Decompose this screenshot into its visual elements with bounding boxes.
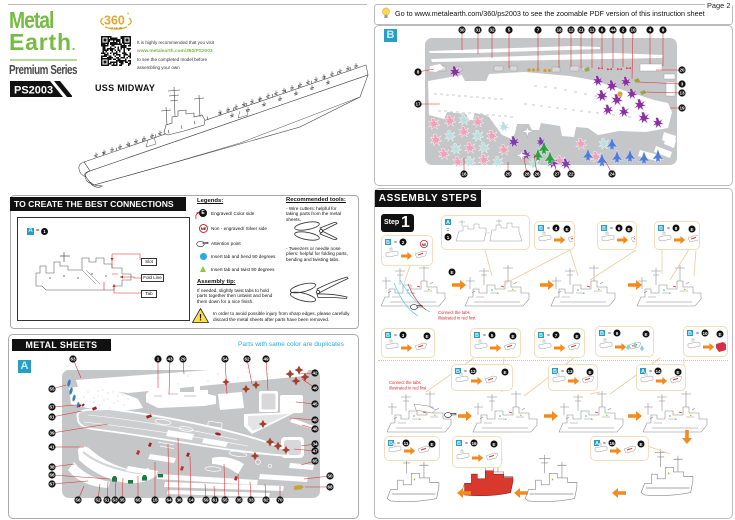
svg-text:61: 61 <box>49 415 55 420</box>
svg-text:=: = <box>547 333 550 339</box>
svg-text:B: B <box>539 226 543 232</box>
svg-text:45: 45 <box>312 402 318 407</box>
svg-text:29: 29 <box>180 357 186 362</box>
svg-text:E: E <box>718 332 721 337</box>
svg-text:7: 7 <box>555 333 558 338</box>
svg-text:18: 18 <box>556 28 562 33</box>
svg-text:62: 62 <box>244 357 250 362</box>
svg-text:=: = <box>696 331 699 337</box>
svg-text:3: 3 <box>402 333 405 338</box>
svg-text:=: = <box>610 226 613 232</box>
svg-text:E: E <box>690 227 693 232</box>
svg-text:54: 54 <box>222 357 228 362</box>
svg-text:E: E <box>565 227 568 232</box>
svg-text:17: 17 <box>415 102 421 107</box>
svg-text:24: 24 <box>609 172 615 177</box>
svg-text:B: B <box>475 333 479 339</box>
svg-text:22: 22 <box>568 172 574 177</box>
svg-text:Connect the tabs: Connect the tabs <box>438 310 470 315</box>
svg-text:40: 40 <box>312 418 318 423</box>
svg-text:5: 5 <box>508 28 511 33</box>
svg-text:32: 32 <box>489 28 495 33</box>
svg-text:B: B <box>457 441 461 447</box>
svg-text:64: 64 <box>166 498 172 503</box>
svg-text:65: 65 <box>135 498 141 503</box>
svg-text:36: 36 <box>176 498 182 503</box>
svg-text:15: 15 <box>152 498 158 503</box>
svg-text:33: 33 <box>248 498 254 503</box>
svg-text:B: B <box>600 331 604 337</box>
svg-text:E: E <box>425 334 428 339</box>
svg-text:12: 12 <box>470 369 476 374</box>
svg-text:6: 6 <box>618 226 621 231</box>
svg-text:A: A <box>595 441 599 447</box>
svg-text:28: 28 <box>524 172 530 177</box>
svg-text:!: ! <box>199 313 202 323</box>
svg-text:48: 48 <box>312 427 318 432</box>
svg-text:=: = <box>464 369 467 375</box>
svg-text:20: 20 <box>679 68 685 73</box>
svg-text:360: 360 <box>104 14 125 28</box>
svg-text:1: 1 <box>447 235 450 240</box>
svg-text:E: E <box>503 370 506 375</box>
svg-text:=: = <box>394 333 397 339</box>
svg-text:Connect the tabs: Connect the tabs <box>389 380 421 385</box>
svg-text:61: 61 <box>212 498 218 503</box>
svg-text:=: = <box>608 331 611 337</box>
svg-text:E: E <box>511 334 514 339</box>
svg-text:E: E <box>492 442 495 447</box>
svg-text:55: 55 <box>49 387 55 392</box>
svg-text:A: A <box>446 220 450 226</box>
svg-text:=: = <box>394 240 397 246</box>
svg-text:16: 16 <box>461 172 467 177</box>
svg-text:9: 9 <box>662 28 665 33</box>
svg-text:44: 44 <box>610 28 616 33</box>
svg-text:11: 11 <box>404 441 409 446</box>
svg-text:4: 4 <box>649 28 652 33</box>
svg-text:E: E <box>644 332 647 337</box>
svg-text:2: 2 <box>402 240 405 245</box>
svg-text:67: 67 <box>49 482 55 487</box>
svg-text:E: E <box>430 442 433 447</box>
svg-text:46: 46 <box>312 386 318 391</box>
svg-text:50: 50 <box>327 474 333 479</box>
svg-text:=: = <box>465 441 468 447</box>
svg-text:A: A <box>641 369 645 375</box>
svg-text:=: = <box>667 226 670 232</box>
svg-text:E: E <box>676 370 679 375</box>
svg-text:19: 19 <box>679 106 685 111</box>
svg-text:B: B <box>389 441 393 447</box>
svg-text:PS2003: PS2003 <box>14 85 53 97</box>
svg-text:55: 55 <box>222 498 228 503</box>
svg-text:B: B <box>386 333 390 339</box>
svg-text:51: 51 <box>104 498 110 503</box>
svg-text:13: 13 <box>679 91 685 96</box>
svg-text:47: 47 <box>312 449 318 454</box>
svg-text:52: 52 <box>95 498 101 503</box>
svg-text:=: = <box>561 369 564 375</box>
svg-text:VIEW: VIEW <box>111 27 123 31</box>
svg-text:43: 43 <box>167 357 173 362</box>
svg-text:illustrated in red first: illustrated in red first <box>389 386 427 391</box>
svg-text:59: 59 <box>203 498 209 503</box>
svg-text:13: 13 <box>567 369 573 374</box>
svg-text:57: 57 <box>49 405 55 410</box>
svg-text:B: B <box>688 331 692 337</box>
svg-text:NE: NE <box>422 243 427 247</box>
svg-text:14: 14 <box>655 369 661 374</box>
svg-text:8: 8 <box>675 226 678 231</box>
svg-text:31: 31 <box>475 28 481 33</box>
svg-text:56: 56 <box>75 498 81 503</box>
svg-text:B: B <box>456 369 460 375</box>
svg-text:8: 8 <box>417 70 420 75</box>
svg-text:E: E <box>588 370 591 375</box>
svg-text:35: 35 <box>119 498 125 503</box>
svg-text:14: 14 <box>188 498 194 503</box>
svg-text:11: 11 <box>590 28 595 33</box>
svg-text:10: 10 <box>702 331 708 336</box>
svg-text:35: 35 <box>236 498 242 503</box>
svg-text:6: 6 <box>601 28 604 33</box>
svg-text:1: 1 <box>157 357 160 362</box>
svg-text:E: E <box>627 227 630 232</box>
svg-text:7: 7 <box>537 28 540 33</box>
svg-text:68: 68 <box>327 485 333 490</box>
svg-text:25: 25 <box>505 172 511 177</box>
svg-text:66: 66 <box>49 473 55 478</box>
svg-text:21: 21 <box>578 28 584 33</box>
svg-text:42: 42 <box>312 371 318 376</box>
svg-text:34: 34 <box>312 442 318 447</box>
svg-text:27: 27 <box>554 172 560 177</box>
svg-text:B: B <box>659 226 663 232</box>
svg-text:2: 2 <box>622 28 625 33</box>
svg-text:=: = <box>649 369 652 375</box>
svg-text:illustrated in red first: illustrated in red first <box>438 316 476 321</box>
svg-text:63: 63 <box>70 357 76 362</box>
svg-text:10: 10 <box>630 28 636 33</box>
svg-text:=: = <box>483 333 486 339</box>
svg-text:E: E <box>450 270 453 275</box>
svg-text:26: 26 <box>534 172 540 177</box>
svg-text:E: E <box>575 334 578 339</box>
svg-text:41: 41 <box>49 445 55 450</box>
svg-text:9: 9 <box>616 331 619 336</box>
svg-text:B: B <box>386 240 390 246</box>
svg-text:30: 30 <box>459 28 465 33</box>
svg-text:B: B <box>539 333 543 339</box>
svg-text:65: 65 <box>312 459 318 464</box>
svg-text:70: 70 <box>277 498 283 503</box>
svg-text:12: 12 <box>568 28 574 33</box>
svg-text:16: 16 <box>471 441 477 446</box>
svg-text:B: B <box>553 369 557 375</box>
svg-text:38: 38 <box>49 465 55 470</box>
svg-text:49: 49 <box>263 357 269 362</box>
svg-text:B: B <box>602 226 606 232</box>
svg-text:5: 5 <box>491 333 494 338</box>
svg-text:=: = <box>547 226 550 232</box>
svg-text:4: 4 <box>555 226 558 231</box>
svg-text:53: 53 <box>112 498 118 503</box>
svg-text:E: E <box>639 442 642 447</box>
svg-text:=: = <box>447 228 450 234</box>
svg-text:3: 3 <box>681 82 684 87</box>
svg-text:62: 62 <box>263 498 269 503</box>
svg-text:39: 39 <box>49 431 55 436</box>
svg-text:15: 15 <box>609 441 615 446</box>
